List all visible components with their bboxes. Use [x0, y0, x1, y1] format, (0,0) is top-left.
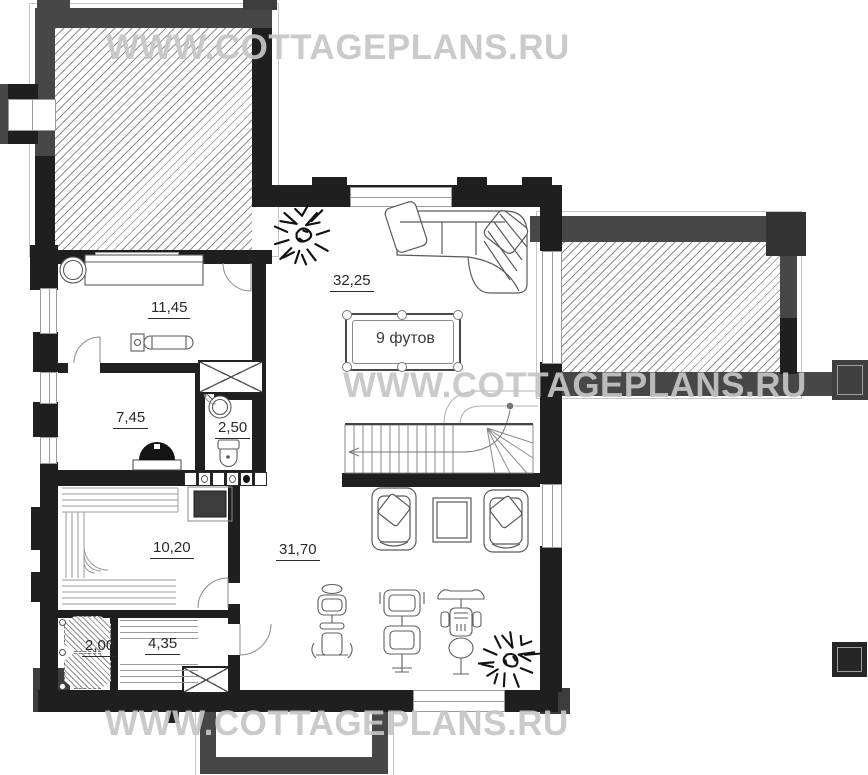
right-window-gym	[542, 484, 562, 548]
appliance-box-round	[198, 472, 211, 486]
shower-tray-2	[64, 653, 111, 689]
gym-machine-icon	[380, 590, 424, 672]
left-window-3	[40, 437, 57, 464]
fireplace-stove-icon	[133, 442, 181, 470]
room-area-label-shower: 2,00	[82, 637, 117, 657]
terrace-pillar-lower	[832, 642, 867, 677]
hall-bench-bottom	[120, 664, 198, 688]
watermark-top: WWW.COTTAGEPLANS.RU	[106, 28, 570, 68]
door-arc	[74, 263, 271, 655]
left-pilaster-1	[31, 507, 41, 550]
lounger-icon	[131, 334, 193, 351]
terrace-tl-top-wall	[35, 8, 272, 28]
wall-restroom-bottom-b	[100, 363, 198, 373]
top-window-living	[350, 187, 452, 207]
room-area-label-sauna: 10,20	[150, 539, 194, 559]
terrace-wall-window	[95, 252, 179, 264]
terrace-tl-left-wall	[35, 28, 55, 156]
bay-window-rail	[0, 84, 8, 144]
armchair-icon	[372, 488, 416, 550]
watermark-middle: WWW.COTTAGEPLANS.RU	[343, 366, 807, 406]
room-area-label-hall: 4,35	[145, 635, 180, 655]
wall-sauna-right-a	[228, 486, 240, 583]
terrace-pillar-upper	[832, 360, 868, 400]
top-wall-pilaster-1	[312, 177, 347, 186]
appliance-box	[184, 472, 197, 486]
top-wall-pilaster-2	[457, 177, 487, 186]
floor-plan: 9 футов	[0, 0, 868, 775]
terrace-right-pilaster	[766, 212, 806, 256]
bay-window-top-block	[8, 84, 38, 99]
room-area-label-steam-room: 7,45	[113, 409, 148, 429]
shower-drain-dot	[59, 619, 66, 626]
coffee-table-icon	[433, 498, 471, 542]
terrace-right-hatch	[547, 242, 780, 372]
wall-hall-right-a	[228, 618, 240, 624]
wall-restroom-bottom-a	[58, 363, 68, 373]
shower-drain-dot	[59, 649, 66, 656]
stairs-bottom-wall	[342, 473, 540, 487]
shower-drain-dot	[59, 683, 66, 690]
terrace-tl-top-notch-right	[243, 0, 277, 10]
bay-window	[8, 99, 56, 131]
billiard-pocket	[453, 310, 463, 320]
terrace-tl-top-notch-left	[37, 0, 70, 10]
right-window-terrace-door	[542, 251, 562, 364]
gym-machine-icon	[438, 590, 484, 674]
room-area-label-billiard-room: 32,25	[330, 272, 374, 292]
corner-block-top-left	[30, 245, 58, 290]
terrace-right-top-wall	[530, 216, 792, 242]
appliance-row	[184, 472, 267, 486]
porch-bottom-wall	[200, 757, 388, 774]
room-area-label-gym: 31,70	[276, 541, 320, 561]
left-window-2	[40, 372, 57, 404]
left-pilaster-2	[31, 572, 41, 602]
wardrobe-x-box	[198, 360, 264, 394]
toilet-icon	[218, 440, 239, 467]
wall-wc-right	[252, 394, 266, 470]
appliance-box-round	[226, 472, 239, 486]
billiard-size-label: 9 футов	[376, 330, 435, 348]
plant-icon	[275, 206, 547, 697]
armchair-icon	[484, 490, 528, 552]
appliance-box	[254, 472, 267, 486]
watermark-bottom: WWW.COTTAGEPLANS.RU	[105, 704, 569, 744]
left-window-1	[40, 288, 57, 334]
left-wall-lower	[40, 462, 58, 694]
gym-machine-icon	[312, 585, 352, 659]
room-area-label-rest-room: 11,45	[148, 299, 190, 319]
appliance-box	[212, 472, 225, 486]
right-wall-upper	[540, 185, 562, 251]
billiard-pocket	[342, 310, 352, 320]
right-wall-lower	[540, 546, 562, 692]
left-wall-pier-2	[33, 402, 58, 437]
sofa-icon	[384, 200, 530, 293]
left-wall-pier-1	[33, 332, 58, 372]
room-area-label-wc: 2,50	[215, 419, 250, 439]
appliance-box-dark	[240, 472, 253, 486]
billiard-pocket	[397, 310, 407, 320]
terrace-tl-left-wall-lower	[35, 156, 55, 250]
bay-window-bottom-block	[8, 129, 38, 144]
sauna-stove-icon	[188, 487, 232, 521]
